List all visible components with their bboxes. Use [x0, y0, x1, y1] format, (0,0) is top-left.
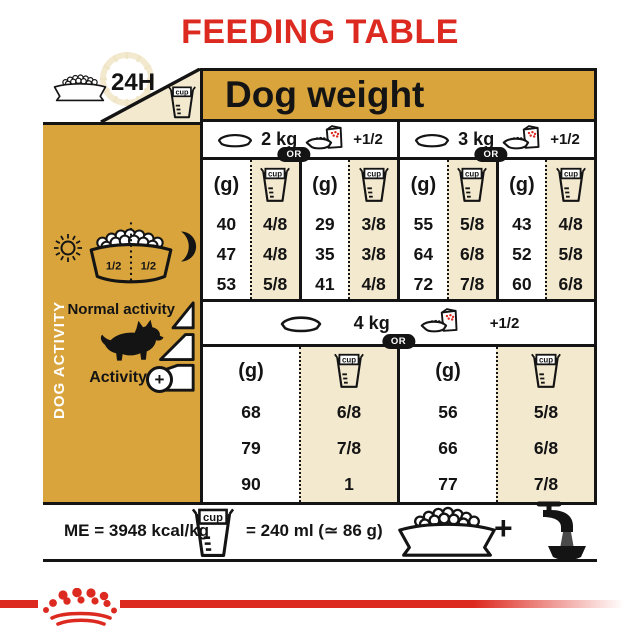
svg-text:cup: cup — [539, 356, 553, 365]
cups-value: 1 — [301, 466, 397, 502]
cups-value: 5/8 — [547, 240, 594, 270]
bowl-half-left-label: 1/2 — [106, 260, 122, 272]
grams-column: (g) 56 66 77 — [397, 347, 496, 502]
grams-unit-label: (g) — [499, 160, 546, 210]
measuring-cup-icon: cup — [457, 166, 487, 204]
cups-column: cup 4/8 4/8 5/8 — [250, 160, 299, 299]
or-badge: OR — [382, 334, 415, 349]
measuring-cup-icon: cup — [334, 352, 364, 390]
red-line-right — [120, 600, 640, 608]
measuring-cup-icon: cup — [260, 166, 290, 204]
grams-value: 35 — [302, 240, 349, 270]
measuring-cup-icon: cup — [556, 166, 586, 204]
weight-header-row-4kg: 4 kg +1/2 OR — [203, 302, 594, 347]
dog-activity-vertical-label: DOG ACTIVITY — [51, 293, 68, 419]
grams-value: 79 — [203, 431, 299, 467]
sun-icon — [48, 228, 88, 268]
cups-value: 7/8 — [498, 466, 594, 502]
split-bowl-icon: 1/2 1/2 — [84, 220, 178, 288]
page-title: FEEDING TABLE — [0, 13, 640, 52]
svg-text:cup: cup — [564, 170, 578, 179]
grams-unit-label: (g) — [203, 347, 299, 395]
cups-value: 6/8 — [301, 395, 397, 431]
grams-column: (g) 68 79 90 — [203, 347, 299, 502]
grams-value: 66 — [400, 431, 496, 467]
cups-column: cup 5/8 6/8 7/8 — [496, 347, 594, 502]
grams-value: 47 — [203, 240, 250, 270]
grams-unit-label: (g) — [203, 160, 250, 210]
dog-weight-header: Dog weight — [203, 71, 594, 122]
cups-value: 3/8 — [350, 240, 397, 270]
plus-half-label: +1/2 — [550, 131, 580, 148]
cups-column: cup 3/8 3/8 4/8 — [348, 160, 397, 299]
grams-unit-label: (g) — [400, 347, 496, 395]
grams-value: 72 — [400, 269, 447, 299]
cups-value: 5/8 — [449, 210, 496, 240]
grams-value: 55 — [400, 210, 447, 240]
cups-value: 7/8 — [449, 269, 496, 299]
cups-column: cup 5/8 6/8 7/8 — [447, 160, 496, 299]
grams-unit-label: (g) — [302, 160, 349, 210]
weight-header-2kg: 2 kg +1/2 OR — [203, 122, 397, 157]
cups-value: 6/8 — [498, 431, 594, 467]
svg-text:cup: cup — [175, 88, 189, 97]
pouch-icon — [420, 308, 460, 338]
grams-column: (g) 40 47 53 — [203, 160, 250, 299]
cups-value: 4/8 — [350, 269, 397, 299]
cups-value: 4/8 — [252, 240, 299, 270]
weight-header-3kg: 3 kg +1/2 OR — [397, 122, 594, 157]
grams-column: (g) 29 35 41 — [299, 160, 349, 299]
metabolizable-energy-label: ME = 3948 kcal/kg — [64, 521, 209, 541]
feeding-table-panel: FEEDING TABLE 24H cup DOG ACTIVITY — [0, 0, 640, 640]
bowl-half-right-label: 1/2 — [141, 260, 157, 272]
feeding-table: cup DOG ACTIVITY 1/2 — [43, 68, 597, 505]
cups-value: 6/8 — [547, 269, 594, 299]
grams-value: 77 — [400, 466, 496, 502]
grams-value: 29 — [302, 210, 349, 240]
pouch-icon — [502, 125, 542, 155]
plus-half-label: +1/2 — [490, 315, 520, 332]
cups-column: cup 4/8 5/8 6/8 — [545, 160, 594, 299]
bowl-icon — [414, 132, 450, 148]
moon-icon — [174, 229, 197, 264]
cups-value: 4/8 — [547, 210, 594, 240]
cups-value: 7/8 — [301, 431, 397, 467]
svg-text:cup: cup — [465, 170, 479, 179]
svg-text:cup: cup — [342, 356, 356, 365]
kibble-bowl-icon — [396, 506, 498, 560]
data-row-4kg: (g) 68 79 90 cup 6/8 7/8 1 (g) 56 66 — [203, 347, 594, 502]
weight-header-4kg: 4 kg +1/2 OR — [203, 302, 594, 344]
svg-text:cup: cup — [367, 170, 381, 179]
grams-value: 68 — [203, 395, 299, 431]
grams-value: 52 — [499, 240, 546, 270]
red-line-left — [0, 600, 38, 608]
grams-unit-label: (g) — [400, 160, 447, 210]
cups-column: cup 6/8 7/8 1 — [299, 347, 397, 502]
svg-text:cup: cup — [203, 512, 223, 524]
grams-value: 64 — [400, 240, 447, 270]
cups-value: 5/8 — [252, 269, 299, 299]
bowl-icon — [278, 314, 324, 333]
plus-circle-icon: + — [146, 366, 173, 393]
measuring-cup-icon: cup — [359, 166, 389, 204]
measuring-cup-icon: cup — [190, 507, 236, 559]
cups-value: 4/8 — [252, 210, 299, 240]
pouch-icon — [305, 125, 345, 155]
measuring-cup-icon: cup — [168, 85, 196, 120]
dog-activity-sidebar: DOG ACTIVITY 1/2 1/2 — [43, 122, 203, 505]
bowl-icon — [217, 132, 253, 148]
data-row-2kg-3kg: (g) 40 47 53 cup 4/8 4/8 5/8 (g) 29 35 — [203, 160, 594, 302]
grams-value: 56 — [400, 395, 496, 431]
or-badge: OR — [278, 147, 311, 162]
weight-header-row: 2 kg +1/2 OR 3 kg +1/2 OR — [203, 122, 594, 160]
cups-value: 3/8 — [350, 210, 397, 240]
cups-value: 6/8 — [449, 240, 496, 270]
cup-equivalence-label: = 240 ml (≃ 86 g) — [246, 521, 383, 541]
or-badge: OR — [475, 147, 508, 162]
water-tap-icon — [521, 500, 595, 562]
plus-sign: + — [494, 510, 513, 547]
grams-column: (g) 43 52 60 — [496, 160, 546, 299]
grams-value: 43 — [499, 210, 546, 240]
crown-logo — [42, 588, 120, 628]
grams-value: 41 — [302, 269, 349, 299]
plus-half-label: +1/2 — [353, 131, 383, 148]
grams-value: 90 — [203, 466, 299, 502]
grams-value: 40 — [203, 210, 250, 240]
weight-label: 4 kg — [354, 313, 390, 334]
svg-text:cup: cup — [268, 170, 282, 179]
grams-column: (g) 55 64 72 — [397, 160, 447, 299]
cups-value: 5/8 — [498, 395, 594, 431]
footer-divider — [43, 559, 597, 562]
dog-weight-label: Dog weight — [225, 74, 424, 116]
weight-grid: Dog weight 2 kg +1/2 OR 3 kg — [200, 68, 597, 505]
measuring-cup-icon: cup — [531, 352, 561, 390]
grams-value: 53 — [203, 269, 250, 299]
grams-value: 60 — [499, 269, 546, 299]
activity-label: Activity — [89, 369, 147, 387]
